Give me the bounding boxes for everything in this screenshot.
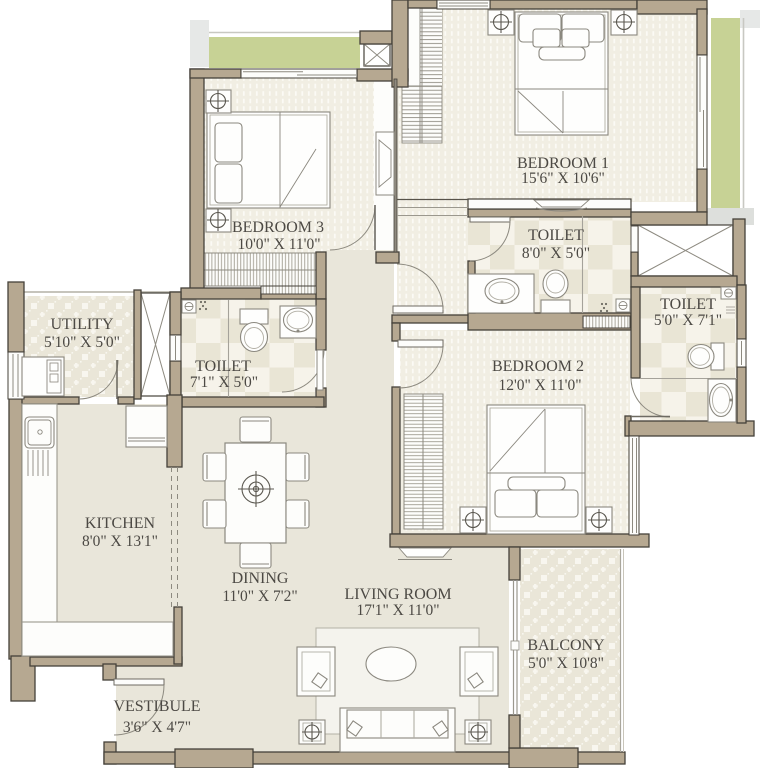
svg-text:11'0" X 7'2": 11'0" X 7'2" — [222, 588, 297, 605]
svg-text:LIVING ROOM: LIVING ROOM — [344, 586, 451, 603]
svg-text:TOILET: TOILET — [195, 358, 251, 375]
svg-text:8'0" X 13'1": 8'0" X 13'1" — [82, 533, 158, 550]
svg-text:BEDROOM 3: BEDROOM 3 — [232, 219, 324, 236]
svg-text:10'0" X 11'0": 10'0" X 11'0" — [237, 236, 320, 253]
svg-text:VESTIBULE: VESTIBULE — [113, 698, 200, 715]
svg-text:DINING: DINING — [232, 570, 289, 587]
svg-text:15'6" X 10'6": 15'6" X 10'6" — [521, 170, 605, 187]
svg-text:BEDROOM 2: BEDROOM 2 — [492, 358, 584, 375]
svg-text:BALCONY: BALCONY — [527, 637, 605, 654]
svg-text:5'0" X 7'1": 5'0" X 7'1" — [654, 312, 722, 329]
svg-text:UTILITY: UTILITY — [50, 316, 114, 333]
svg-text:3'6" X 4'7": 3'6" X 4'7" — [123, 719, 191, 736]
svg-text:KITCHEN: KITCHEN — [85, 515, 156, 532]
svg-text:17'1" X 11'0": 17'1" X 11'0" — [356, 602, 439, 619]
svg-text:TOILET: TOILET — [528, 227, 584, 244]
svg-text:5'10" X 5'0": 5'10" X 5'0" — [44, 334, 120, 351]
svg-text:TOILET: TOILET — [660, 296, 716, 313]
svg-text:12'0" X 11'0": 12'0" X 11'0" — [498, 377, 581, 394]
svg-text:7'1" X 5'0": 7'1" X 5'0" — [190, 374, 258, 391]
svg-text:8'0" X 5'0": 8'0" X 5'0" — [522, 245, 590, 262]
svg-text:5'0" X 10'8": 5'0" X 10'8" — [528, 655, 604, 672]
